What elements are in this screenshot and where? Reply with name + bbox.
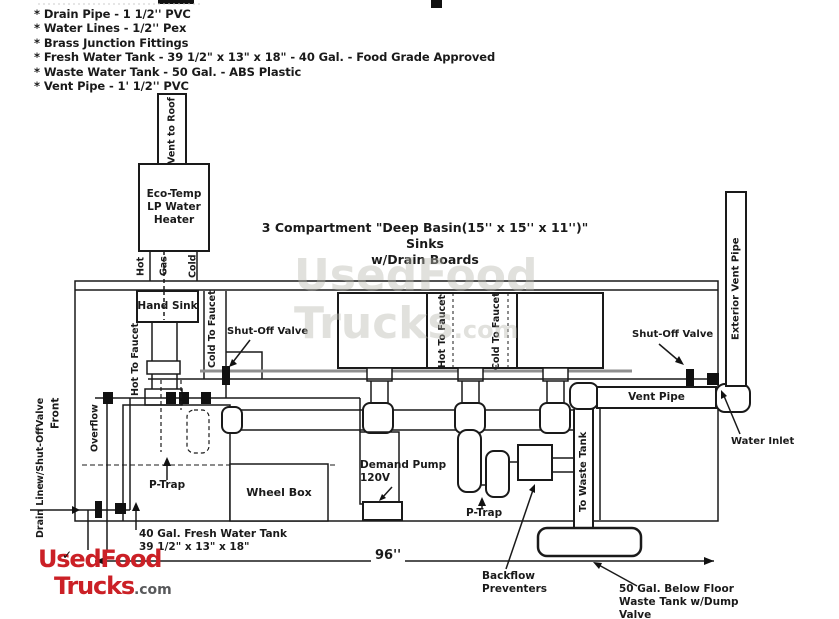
spec-item: * Fresh Water Tank - 39 1/2" x 13" x 18"… — [34, 50, 495, 64]
vent-pipe-label: Vent Pipe — [597, 389, 716, 407]
hot-to-faucet-sink-label: Hot To Faucet — [436, 298, 449, 364]
wheel-box-label: Wheel Box — [230, 464, 328, 521]
backflow-arrow — [506, 490, 533, 569]
hot-to-faucet-hand-label: Hot To Faucet — [129, 322, 142, 396]
shut-off-valve-left-arrow — [233, 340, 250, 362]
plumbing-diagram-page: * Drain Pipe - 1 1/2'' PVC * Water Lines… — [0, 0, 839, 619]
dimension-96-label: 96'' — [371, 550, 405, 562]
exterior-vent-pipe-label: Exterior Vent Pipe — [726, 194, 746, 384]
demand-pump-label-line: Demand Pump — [360, 459, 446, 472]
cold-water-line — [148, 366, 719, 388]
backflow-preventers-label: Backflow Preventers — [482, 570, 547, 596]
logo-check-icon: ✓ — [62, 543, 72, 568]
drain-line-label-line: Drain Line — [35, 484, 47, 539]
spec-item: * Waste Water Tank - 50 Gal. - ABS Plast… — [34, 65, 495, 79]
water-heater-label-line: LP Water — [147, 201, 201, 214]
to-waste-tank-label: To Waste Tank — [574, 418, 593, 526]
spec-item: * Vent Pipe - 1' 1/2'' PVC — [34, 79, 495, 93]
vent-to-roof-label: Vent to Roof — [159, 97, 185, 165]
waste-tank-label-line: Waste Tank w/Dump — [619, 596, 739, 609]
logo-word2: Trucks — [54, 572, 134, 600]
hand-sink-label: Hand Sink — [137, 291, 198, 322]
backflow-label-line: Preventers — [482, 583, 547, 596]
shut-off-valve-right-label: Shut-Off Valve — [632, 329, 713, 341]
drain-pipe-run — [222, 403, 574, 433]
drain-line-label-line: Valve — [35, 398, 47, 427]
three-compartment-sink — [338, 293, 603, 368]
shut-off-valve-left-label: Shut-Off Valve — [227, 326, 308, 338]
water-heater-label-line: Heater — [154, 214, 194, 227]
shut-off-valve-right-fitting — [686, 369, 694, 388]
p-trap-sink-label: P-Trap — [466, 508, 502, 520]
backflow-label-line: Backflow — [482, 570, 547, 583]
demand-pump-label-line: 120V — [360, 472, 446, 485]
water-inlet-fitting — [707, 373, 719, 385]
cold-to-faucet-hand-label: Cold To Faucet — [206, 294, 219, 364]
waste-tank-label-line: Valve — [619, 609, 739, 619]
shut-off-valve-right-arrow — [659, 344, 679, 361]
usedfoodtrucks-logo: ✓ UsedFood Trucks.com — [38, 547, 172, 603]
overflow-label: Overflow — [88, 402, 102, 454]
sink-title-line2: w/Drain Boards — [243, 252, 607, 268]
spec-list: * Drain Pipe - 1 1/2'' PVC * Water Lines… — [34, 7, 495, 93]
spec-item: * Water Lines - 1/2'' Pex — [34, 21, 495, 35]
cold-to-faucet-sink-label: Cold To Faucet — [490, 298, 503, 364]
sink-p-trap-assembly — [458, 430, 574, 497]
sink-title: 3 Compartment "Deep Basin(15'' x 15'' x … — [243, 220, 607, 268]
drain-line-label-line: w/Shut-Off — [35, 427, 47, 484]
water-heater-label-line: Eco-Temp — [147, 188, 202, 201]
demand-pump-label: Demand Pump 120V — [360, 459, 446, 485]
spec-item: * Brass Junction Fittings — [34, 36, 495, 50]
shut-off-valve-left-fitting — [222, 366, 230, 385]
water-heater-label: Eco-Temp LP Water Heater — [139, 164, 209, 251]
sink-title-line1: 3 Compartment "Deep Basin(15'' x 15'' x … — [243, 220, 607, 252]
drain-line-label: Drain Linew/Shut-OffValve — [22, 428, 60, 508]
spec-item: * Drain Pipe - 1 1/2'' PVC — [34, 7, 495, 21]
logo-suffix: .com — [134, 582, 172, 598]
sink-tailpieces — [367, 368, 568, 403]
p-trap-hand-label: P-Trap — [149, 480, 185, 492]
gas-line-label: Gas — [158, 250, 170, 282]
water-inlet-label: Water Inlet — [731, 436, 794, 448]
waste-tank — [538, 528, 641, 556]
hot-line-label: Hot — [135, 250, 147, 282]
waste-tank-label: 50 Gal. Below Floor Waste Tank w/Dump Va… — [619, 583, 739, 619]
waste-tank-label-line: 50 Gal. Below Floor — [619, 583, 739, 596]
fresh-tank-label-line: 40 Gal. Fresh Water Tank — [139, 528, 287, 541]
cold-line-label: Cold — [187, 250, 199, 282]
logo-word1: UsedFood — [38, 545, 161, 573]
